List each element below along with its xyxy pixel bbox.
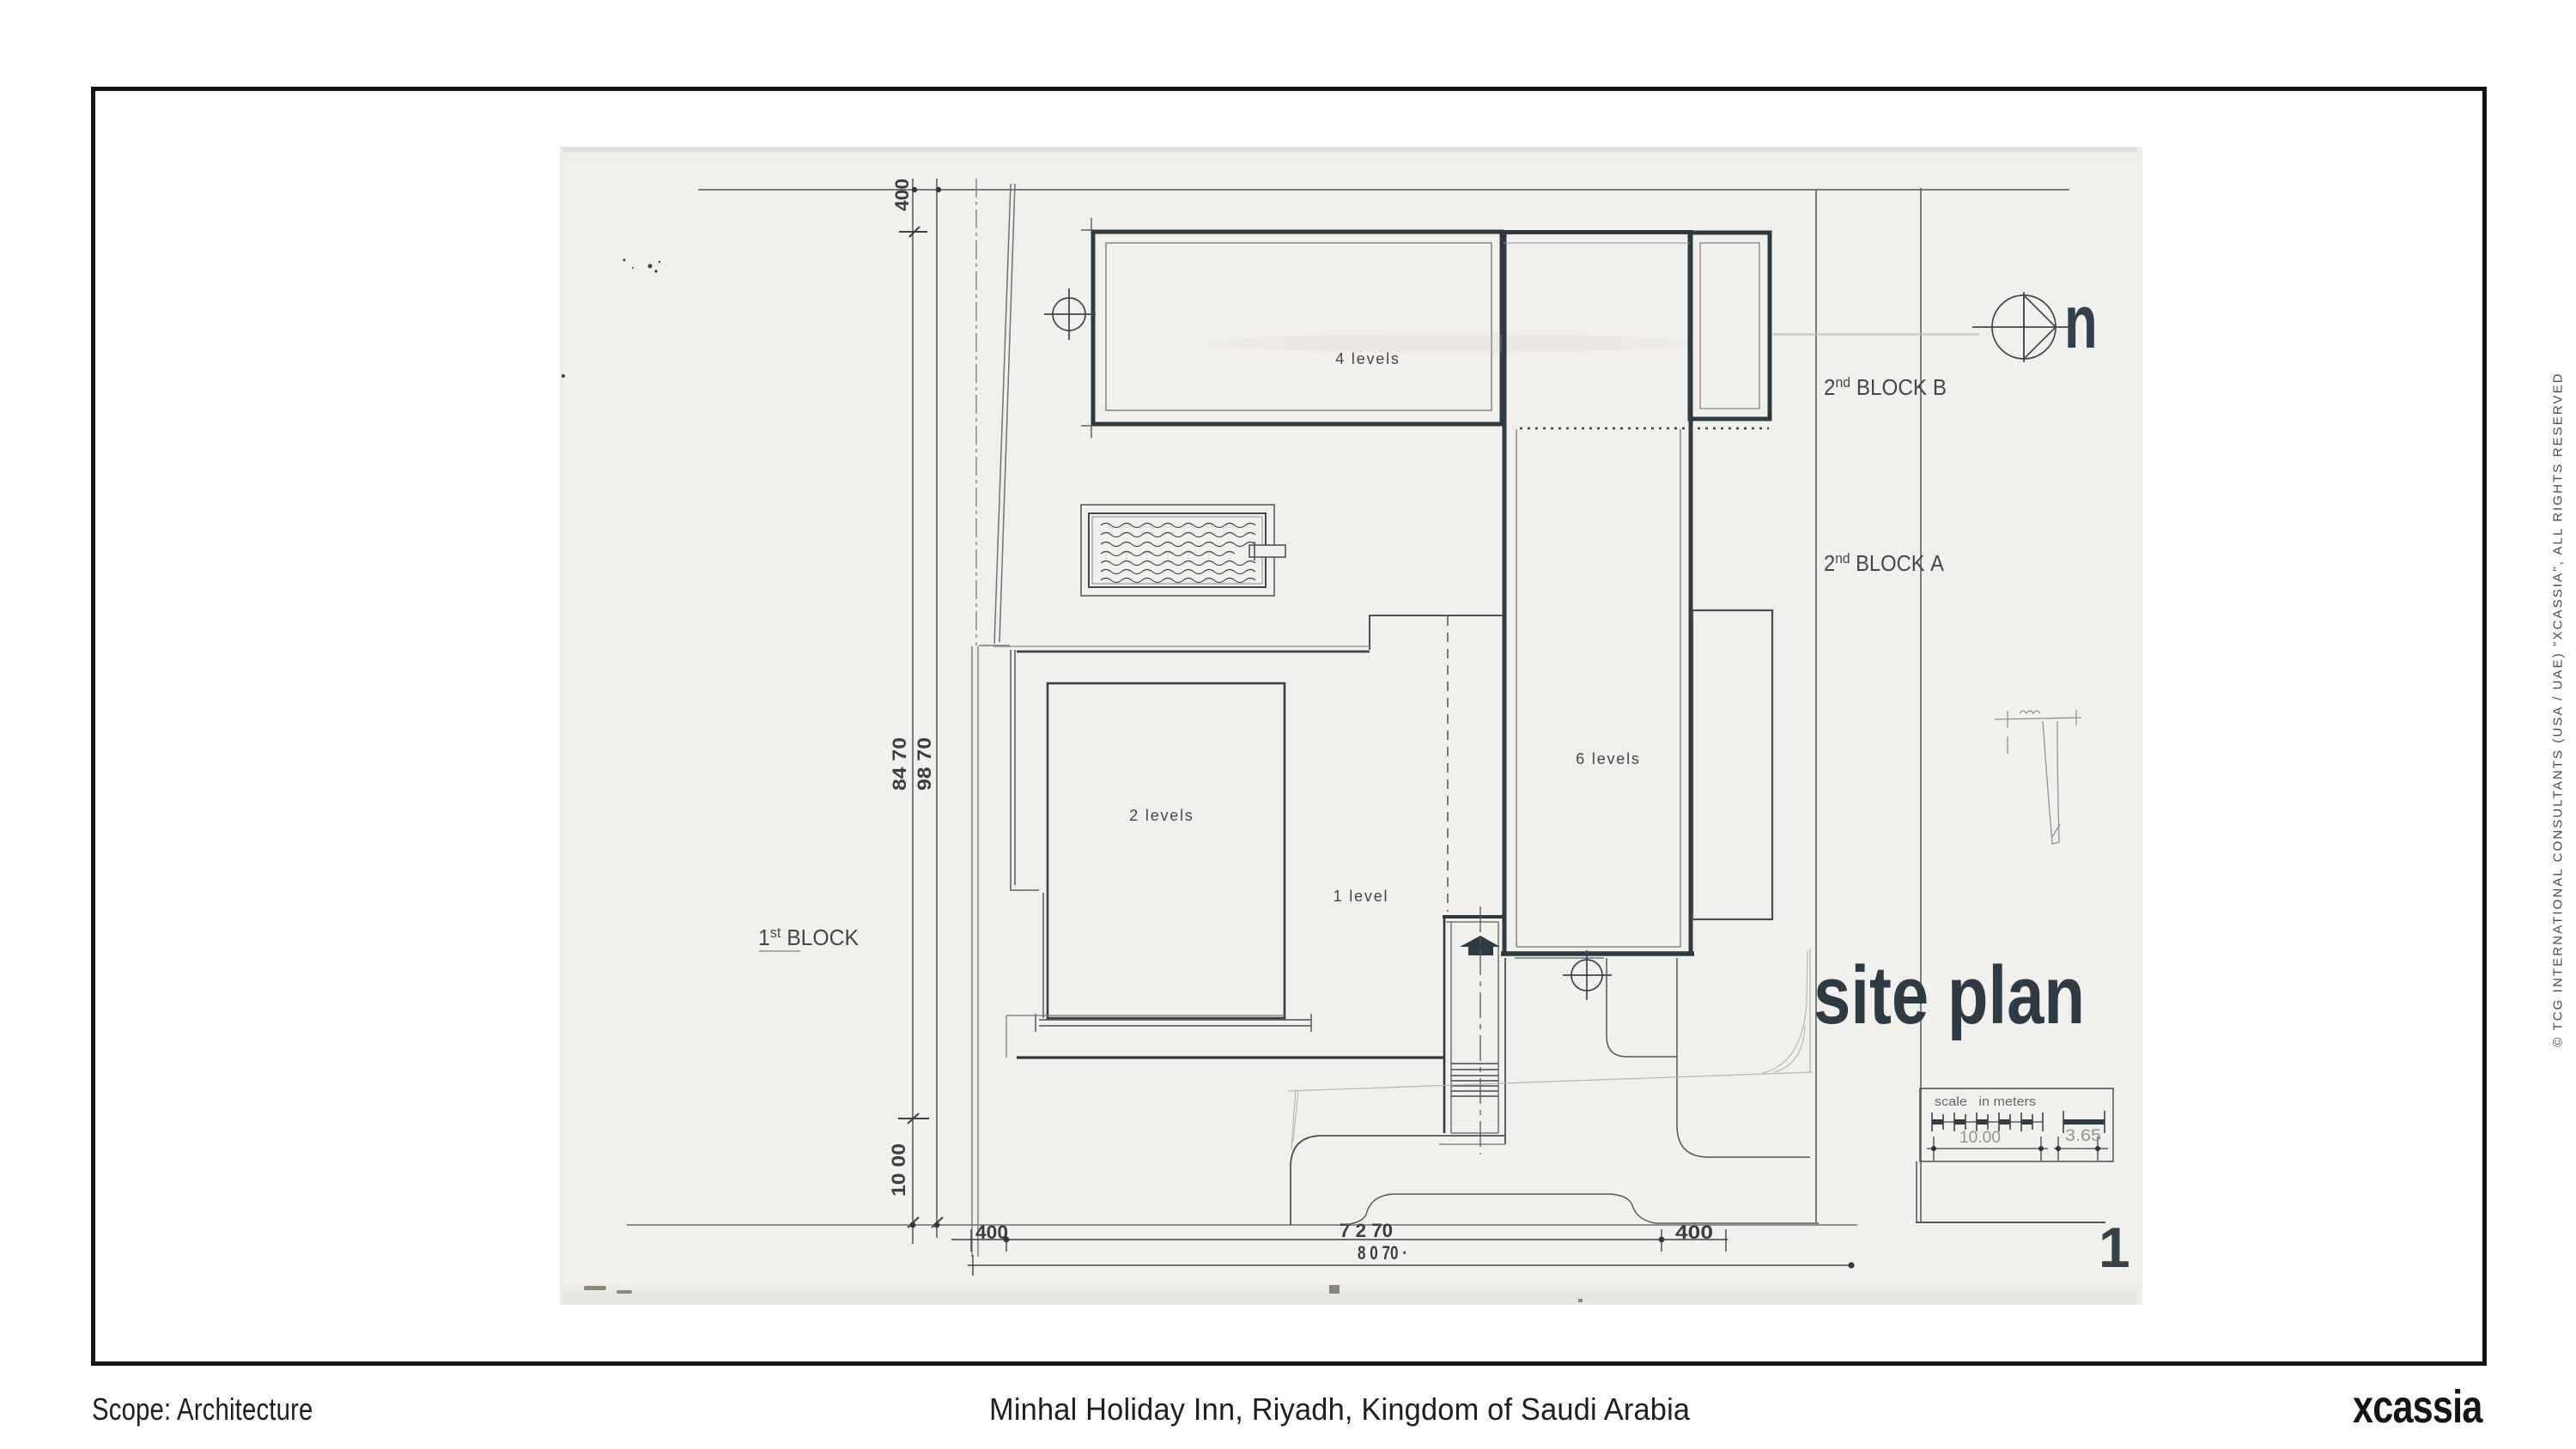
svg-text:6 levels: 6 levels: [1576, 750, 1640, 767]
svg-text:84 70: 84 70: [889, 737, 910, 791]
svg-text:2nd BLOCK B: 2nd BLOCK B: [1824, 374, 1947, 400]
svg-text:site plan: site plan: [1814, 949, 2085, 1041]
svg-text:scale in meters: scale in meters: [1935, 1094, 2036, 1109]
svg-text:3.65: 3.65: [2065, 1127, 2101, 1145]
svg-text:2 levels: 2 levels: [1129, 807, 1194, 824]
svg-text:n: n: [2064, 281, 2098, 365]
svg-text:10 00: 10 00: [888, 1143, 909, 1197]
svg-text:1 level: 1 level: [1334, 888, 1389, 905]
svg-text:1st BLOCK: 1st BLOCK: [758, 925, 860, 950]
svg-text:8 0 70 ·: 8 0 70 ·: [1358, 1242, 1407, 1264]
svg-text:400: 400: [891, 179, 913, 211]
svg-text:400: 400: [1675, 1222, 1713, 1243]
svg-text:2nd BLOCK A: 2nd BLOCK A: [1824, 550, 1945, 576]
svg-text:98 70: 98 70: [914, 737, 935, 791]
svg-text:10.00: 10.00: [1959, 1129, 2001, 1147]
svg-text:400: 400: [975, 1222, 1008, 1243]
svg-text:4 levels: 4 levels: [1335, 350, 1400, 367]
svg-text:1: 1: [2099, 1216, 2130, 1279]
svg-text:7 2 70: 7 2 70: [1340, 1220, 1393, 1241]
